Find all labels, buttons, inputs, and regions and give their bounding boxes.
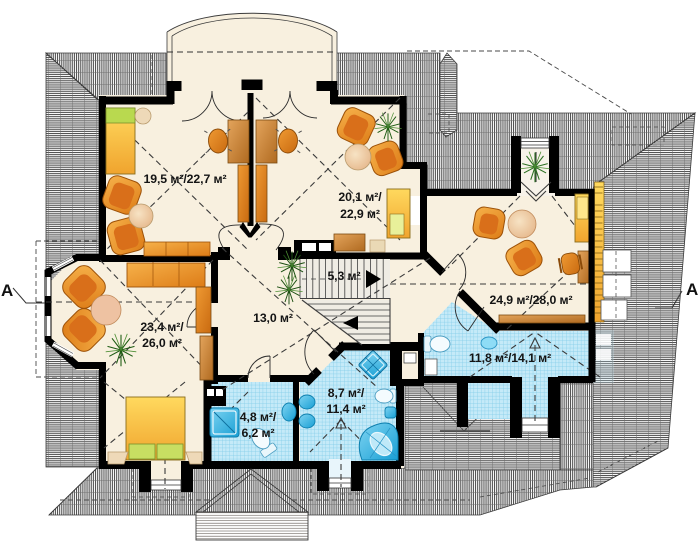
svg-text:22,9 м²: 22,9 м² [340, 207, 380, 221]
svg-text:20,1 м²/: 20,1 м²/ [338, 190, 382, 204]
svg-text:5,3 м²: 5,3 м² [327, 269, 360, 283]
svg-text:13,0 м²: 13,0 м² [253, 311, 293, 325]
svg-text:4,8 м²/: 4,8 м²/ [240, 410, 277, 424]
svg-text:23,4 м²/: 23,4 м²/ [140, 320, 184, 334]
svg-text:26,0 м²: 26,0 м² [142, 336, 182, 350]
svg-text:24,9 м²/28,0 м²: 24,9 м²/28,0 м² [490, 293, 573, 307]
svg-text:11,4 м²: 11,4 м² [326, 402, 365, 416]
svg-text:19,5 м²/22,7 м²: 19,5 м²/22,7 м² [144, 172, 227, 186]
svg-text:A: A [686, 280, 698, 299]
svg-text:8,7 м²/: 8,7 м²/ [328, 386, 365, 400]
svg-text:6,2 м²: 6,2 м² [241, 426, 274, 440]
svg-text:11,8 м²/14,1 м²: 11,8 м²/14,1 м² [469, 351, 551, 365]
svg-text:A: A [1, 281, 13, 300]
